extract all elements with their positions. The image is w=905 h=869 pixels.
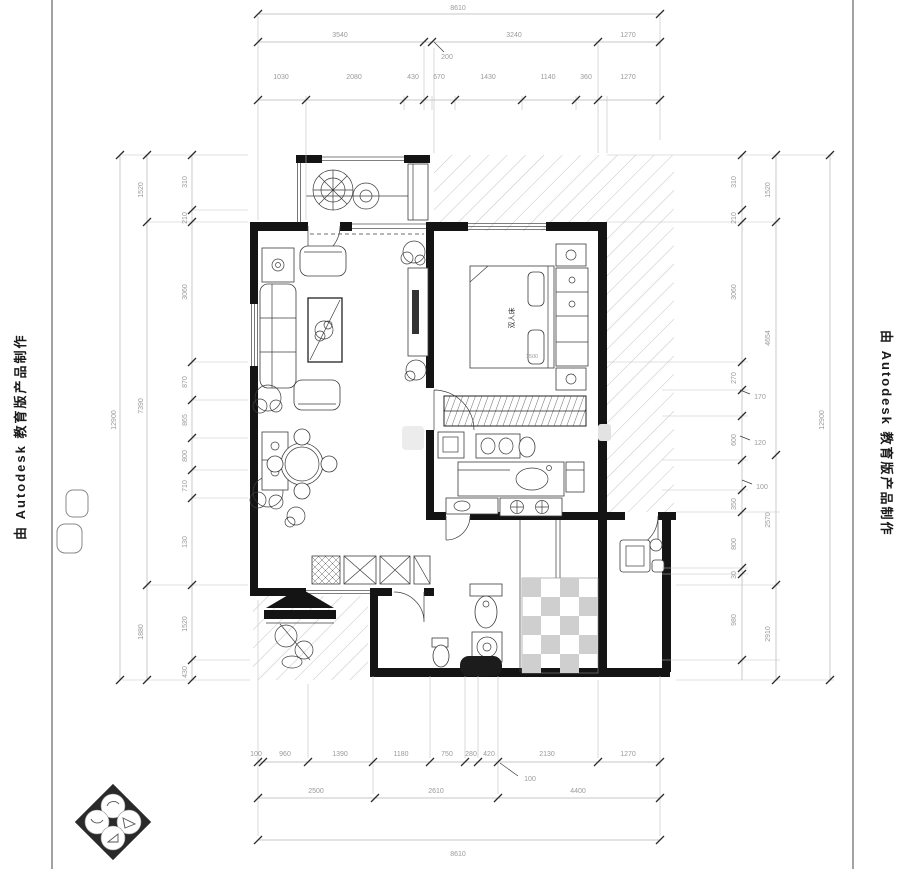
dim: 430 — [182, 666, 189, 678]
bathroom — [432, 520, 598, 676]
closet-hangers — [444, 396, 586, 426]
dim: 1270 — [620, 32, 636, 39]
dim-leader: 100 — [756, 484, 768, 491]
dim: 310 — [731, 176, 738, 188]
dim: 1880 — [138, 624, 145, 640]
dim: 800 — [731, 538, 738, 550]
dim: 980 — [731, 614, 738, 626]
margin-marks — [57, 490, 88, 553]
porch-cabinet — [408, 164, 428, 220]
dim: 210 — [182, 212, 189, 224]
dining-area — [262, 429, 430, 584]
watermark-blob-2 — [598, 424, 611, 441]
shoe-cabinet — [438, 432, 464, 458]
balcony-hatch-bottom-left — [253, 596, 368, 680]
bathtub — [460, 656, 502, 676]
dim: 2130 — [539, 751, 555, 758]
kitchen-counter — [458, 462, 564, 496]
dim: 1520 — [182, 616, 189, 632]
dim: 360 — [580, 74, 592, 81]
dim-top-total: 8610 — [450, 5, 466, 12]
bed-dim-label: 1500 — [526, 354, 538, 360]
dim: 800 — [182, 450, 189, 462]
watermark-blob-1 — [402, 426, 424, 450]
dims-left: 12900 1520 7390 1880 310 210 3060 870 86… — [111, 176, 189, 678]
entry-porch — [306, 164, 428, 220]
dim: 310 — [182, 176, 189, 188]
dim: 2080 — [346, 74, 362, 81]
dim: 1520 — [138, 182, 145, 198]
dims-right: 12900 1520 4654 2570 2910 310 210 3060 2… — [731, 176, 826, 642]
plant-top-right — [401, 241, 425, 265]
nightstand-top — [556, 244, 586, 266]
dims-bottom: 100 960 1390 1180 750 280 420 2130 1270 … — [250, 751, 636, 858]
dim: 600 — [731, 434, 738, 446]
dim: 865 — [182, 414, 189, 426]
dim: 4400 — [570, 788, 586, 795]
porch-plant-large — [313, 170, 353, 210]
nightstand-bottom — [556, 368, 586, 390]
dim: 3060 — [182, 284, 189, 300]
dim: 350 — [731, 498, 738, 510]
storage-row — [312, 556, 430, 584]
stool — [519, 437, 535, 457]
dim: 870 — [182, 376, 189, 388]
dim: 1140 — [540, 74, 555, 81]
dim: 2610 — [428, 788, 444, 795]
dims-top: 8610 3540 3240 1270 200 1030 2080 430 67… — [273, 5, 636, 81]
dim-leader: 200 — [441, 54, 453, 61]
stove — [500, 498, 562, 516]
dim-leader: 100 — [524, 776, 536, 783]
corner-table-lamp — [262, 248, 294, 282]
dim: 280 — [465, 751, 477, 758]
dim: 430 — [407, 74, 419, 81]
dim: 130 — [182, 536, 189, 548]
dim: 2570 — [765, 512, 772, 528]
dim-left-total: 12900 — [111, 410, 118, 430]
toilet — [470, 584, 502, 628]
dim: 750 — [441, 751, 453, 758]
dim: 1390 — [332, 751, 348, 758]
leader-line — [434, 42, 444, 52]
dim: 1520 — [765, 182, 772, 198]
sofa — [260, 284, 296, 388]
dim: 2910 — [765, 626, 772, 642]
canopy-bar — [264, 610, 336, 619]
dim: 100 — [250, 751, 262, 758]
bidet — [432, 638, 449, 667]
prep-counter — [446, 498, 498, 514]
dim: 1180 — [393, 751, 408, 758]
dim: 960 — [279, 751, 291, 758]
bed-label: 双人床 — [507, 308, 516, 329]
dim: 7390 — [138, 398, 145, 414]
dim: 2500 — [308, 788, 324, 795]
coffee-table — [308, 298, 342, 362]
dim: 1270 — [620, 751, 636, 758]
dimension-ticks — [116, 10, 834, 844]
plant-dining — [285, 507, 305, 527]
bedroom-wardrobe — [556, 268, 588, 366]
dimension-lines — [120, 14, 834, 840]
dim: 1030 — [273, 74, 289, 81]
dim: 30 — [731, 571, 738, 579]
armchair-top — [300, 246, 346, 276]
dim: 420 — [483, 751, 495, 758]
dim: 1430 — [480, 74, 496, 81]
vanity-double-sink — [476, 434, 520, 458]
dim-right-total: 12900 — [819, 410, 826, 430]
drawing-sheet: 由 Autodesk 教育版产品制作 由 Autodesk 教育版产品制作 — [0, 0, 905, 869]
fridge — [566, 462, 584, 492]
leader-line — [500, 763, 518, 776]
tile-floor — [522, 578, 598, 673]
dim: 4654 — [765, 330, 772, 346]
tv-cabinet — [408, 268, 428, 356]
dim: 710 — [182, 480, 189, 492]
dim-leader: 170 — [754, 394, 766, 401]
bedroom: 双人床 1500 — [444, 244, 588, 426]
dim: 1270 — [620, 74, 636, 81]
floorplan-canvas: 双人床 1500 — [0, 0, 905, 869]
dim: 270 — [731, 372, 738, 384]
dim: 3240 — [506, 32, 522, 39]
dim: 3060 — [731, 284, 738, 300]
dim: 670 — [433, 74, 445, 81]
corner-logo — [75, 784, 151, 860]
plant-mid-right — [405, 360, 426, 381]
dim: 210 — [731, 212, 738, 224]
dim-leader: 120 — [754, 440, 766, 447]
dim-bottom-total: 8610 — [450, 851, 466, 858]
dim: 3540 — [332, 32, 348, 39]
balcony-bottom-right — [620, 539, 664, 572]
armchair-bottom — [294, 380, 340, 410]
